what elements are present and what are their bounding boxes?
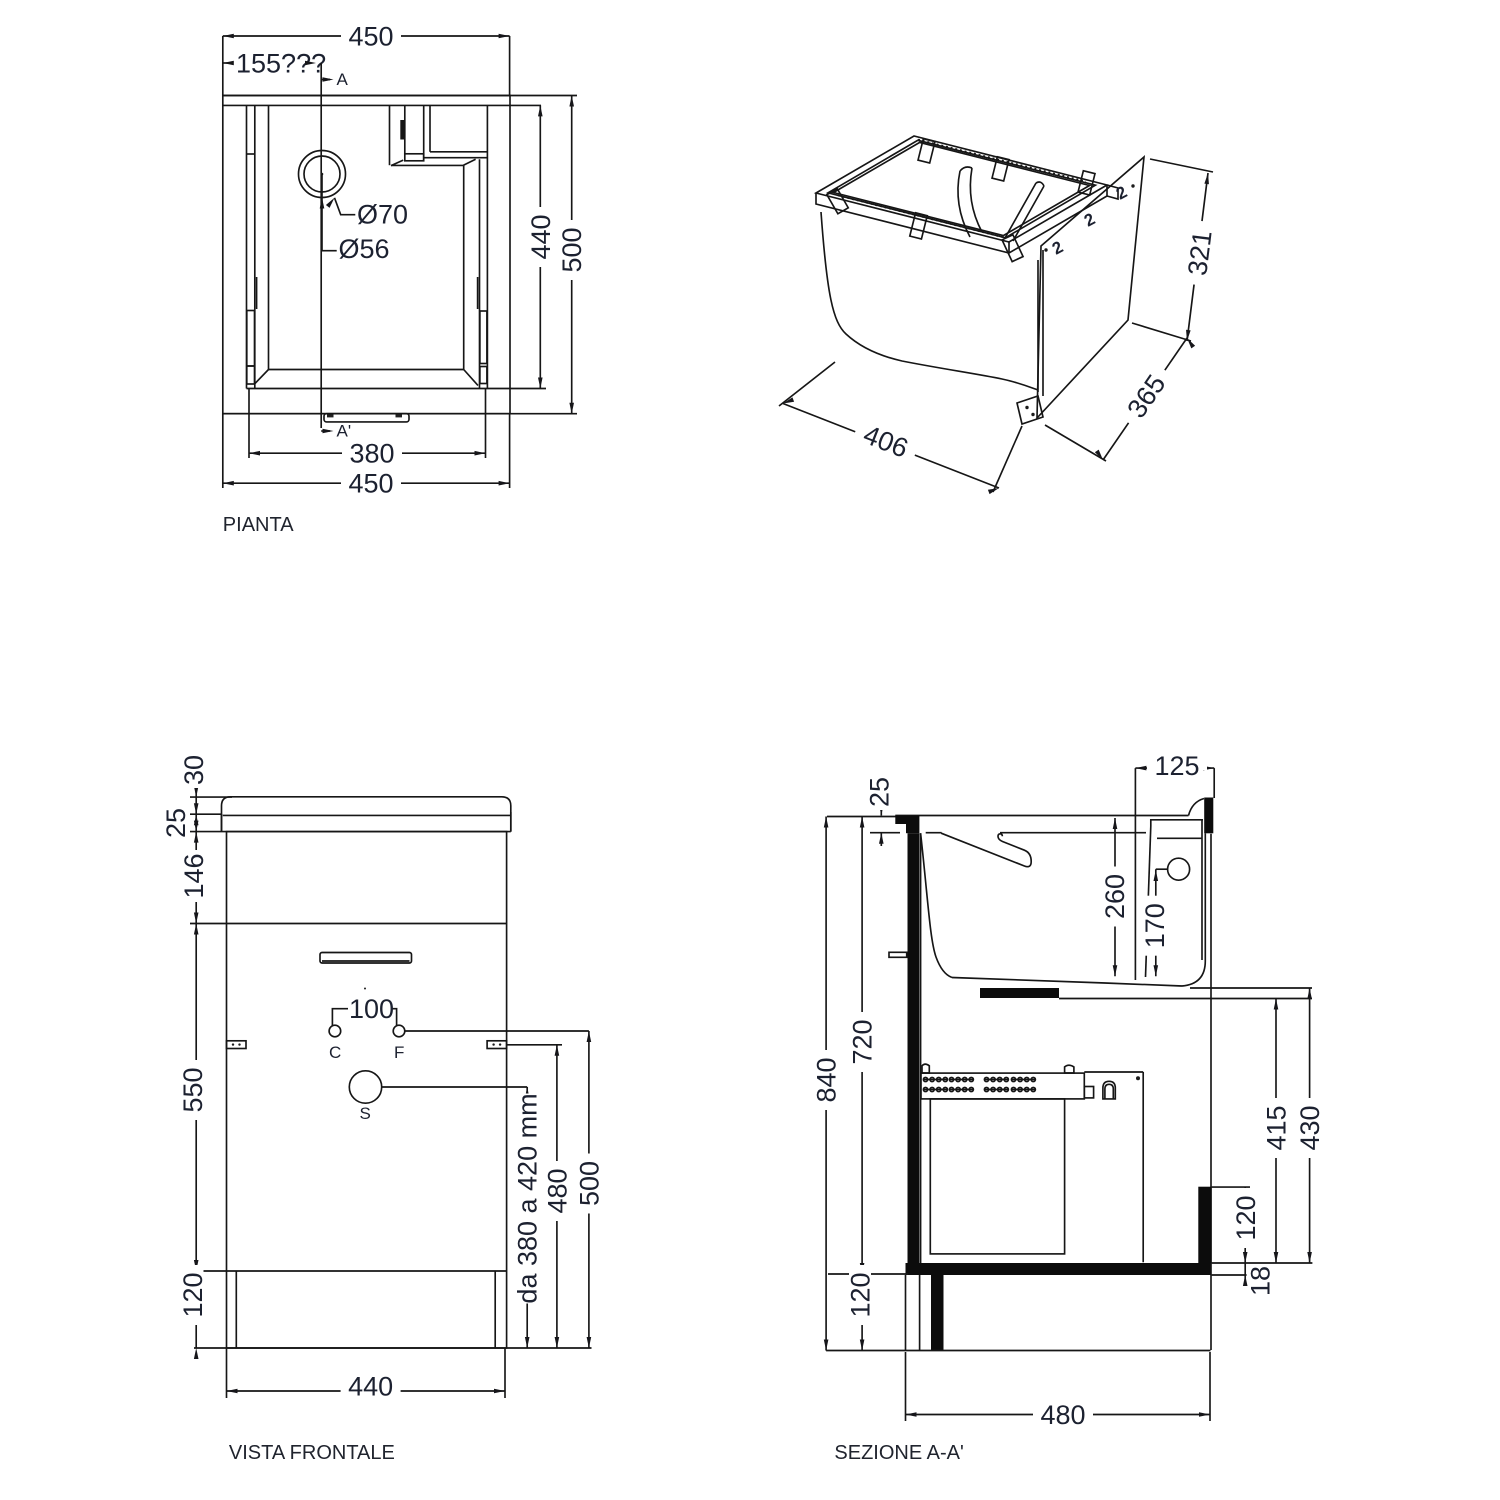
svg-text:450: 450	[348, 469, 393, 499]
svg-text:18: 18	[1246, 1266, 1276, 1296]
svg-text:415: 415	[1262, 1105, 1292, 1150]
svg-text:SEZIONE A-A': SEZIONE A-A'	[834, 1442, 963, 1464]
svg-text:260: 260	[1100, 874, 1130, 919]
svg-text:321: 321	[1182, 229, 1217, 277]
svg-text:450: 450	[348, 22, 393, 52]
svg-text:S: S	[360, 1104, 371, 1123]
svg-text:120: 120	[178, 1272, 208, 1317]
svg-text:A: A	[337, 70, 349, 89]
svg-text:720: 720	[848, 1019, 878, 1064]
svg-text:PIANTA: PIANTA	[223, 514, 294, 536]
svg-text:F: F	[394, 1043, 404, 1062]
svg-text:Ø56: Ø56	[339, 234, 390, 264]
svg-text:da 380 a 420 mm: da 380 a 420 mm	[513, 1093, 543, 1303]
svg-text:120: 120	[1231, 1195, 1261, 1240]
svg-text:25: 25	[161, 808, 191, 838]
svg-text:550: 550	[178, 1067, 208, 1112]
svg-text:146: 146	[179, 853, 209, 898]
svg-text:VISTA FRONTALE: VISTA FRONTALE	[229, 1442, 395, 1464]
svg-text:440: 440	[526, 214, 556, 259]
svg-text:125: 125	[1154, 751, 1199, 781]
svg-text:440: 440	[348, 1372, 393, 1402]
svg-text:100: 100	[349, 994, 394, 1024]
svg-text:170: 170	[1140, 903, 1170, 948]
svg-text:500: 500	[574, 1161, 604, 1206]
svg-text:430: 430	[1295, 1105, 1325, 1150]
svg-text:500: 500	[557, 227, 587, 272]
svg-text:480: 480	[542, 1168, 572, 1213]
svg-text:25: 25	[865, 777, 895, 807]
svg-text:120: 120	[846, 1272, 876, 1317]
svg-text:C: C	[329, 1043, 341, 1062]
svg-text:840: 840	[812, 1057, 842, 1102]
svg-text:480: 480	[1040, 1400, 1085, 1430]
svg-text:30: 30	[179, 755, 209, 785]
svg-text:Ø70: Ø70	[357, 200, 408, 230]
svg-text:380: 380	[349, 439, 394, 469]
